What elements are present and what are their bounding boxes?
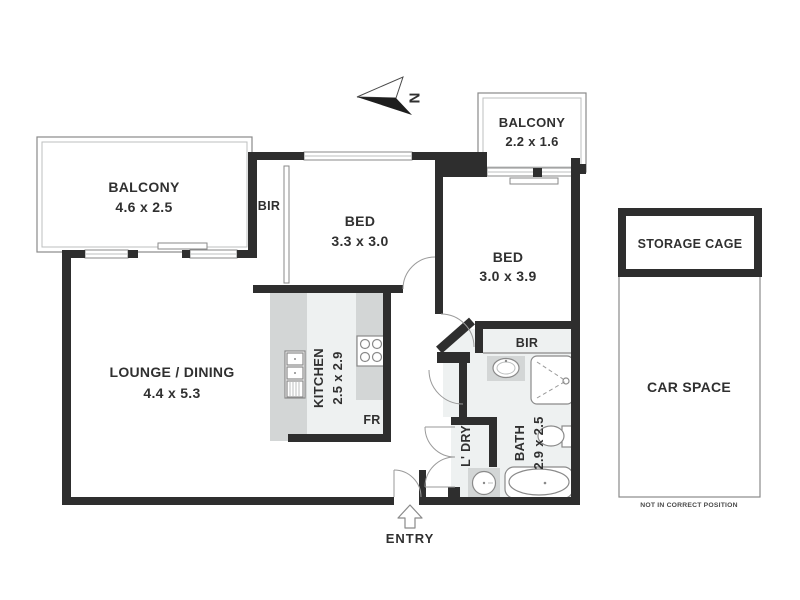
vanity-basin-fixture <box>487 356 525 381</box>
bath-label: BATH <box>512 425 527 461</box>
laundry-door-swing-upper <box>425 427 455 457</box>
bir1-sliding-door <box>284 166 289 283</box>
balcony2-dims: 2.2 x 1.6 <box>505 134 558 149</box>
bathtub-fixture <box>505 467 573 498</box>
car-space-label: CAR SPACE <box>647 379 731 395</box>
north-arrow-icon: N <box>357 77 423 115</box>
fridge-label: FR <box>363 413 380 427</box>
floorplan-svg: N BALCONY 4.6 x 2.5 BALCONY 2.2 x 1.6 <box>0 0 800 600</box>
laundry-label: L' DRY <box>459 425 473 467</box>
entry-marker: ENTRY <box>386 505 435 546</box>
entry-door-swing <box>394 470 421 497</box>
entry-arrow-icon <box>398 505 422 528</box>
entry-label: ENTRY <box>386 531 435 546</box>
bir2-label: BIR <box>516 336 538 350</box>
kitchen-dims: 2.5 x 2.9 <box>330 351 345 404</box>
bed2-label: BED <box>493 249 523 265</box>
car-space-note: NOT IN CORRECT POSITION <box>640 502 738 509</box>
sink-fixture <box>285 351 305 398</box>
floorplan: N BALCONY 4.6 x 2.5 BALCONY 2.2 x 1.6 <box>0 0 800 600</box>
balcony-top-right: BALCONY 2.2 x 1.6 <box>478 93 586 172</box>
balcony2-label: BALCONY <box>499 115 565 130</box>
north-label: N <box>406 93 423 104</box>
bed2-slider-window <box>487 168 573 184</box>
kitchen-label: KITCHEN <box>311 348 326 408</box>
storage-cage: STORAGE CAGE <box>622 212 758 273</box>
storage-cage-label: STORAGE CAGE <box>638 237 743 251</box>
bed1-window <box>304 152 412 160</box>
lounge-label: LOUNGE / DINING <box>109 364 234 380</box>
shower-fixture <box>531 356 573 404</box>
bed1-dims: 3.3 x 3.0 <box>331 233 388 249</box>
bed1-label: BED <box>345 213 375 229</box>
balcony1-label: BALCONY <box>108 179 180 195</box>
lounge-slider-panel <box>158 243 207 249</box>
lounge-window-2 <box>190 250 237 258</box>
cooktop-fixture <box>357 336 385 366</box>
bath-dims: 2.9 x 2.5 <box>531 416 546 469</box>
laundry-door-swing-lower <box>425 457 455 487</box>
bed1-door-swing <box>403 257 435 289</box>
laundry-trough-fixture <box>468 468 500 497</box>
bir1-label: BIR <box>258 199 280 213</box>
balcony-top-left: BALCONY 4.6 x 2.5 <box>37 137 252 252</box>
bed2-dims: 3.0 x 3.9 <box>479 268 536 284</box>
lounge-dims: 4.4 x 5.3 <box>143 385 200 401</box>
balcony1-dims: 4.6 x 2.5 <box>115 199 172 215</box>
lounge-window-1 <box>85 250 128 258</box>
